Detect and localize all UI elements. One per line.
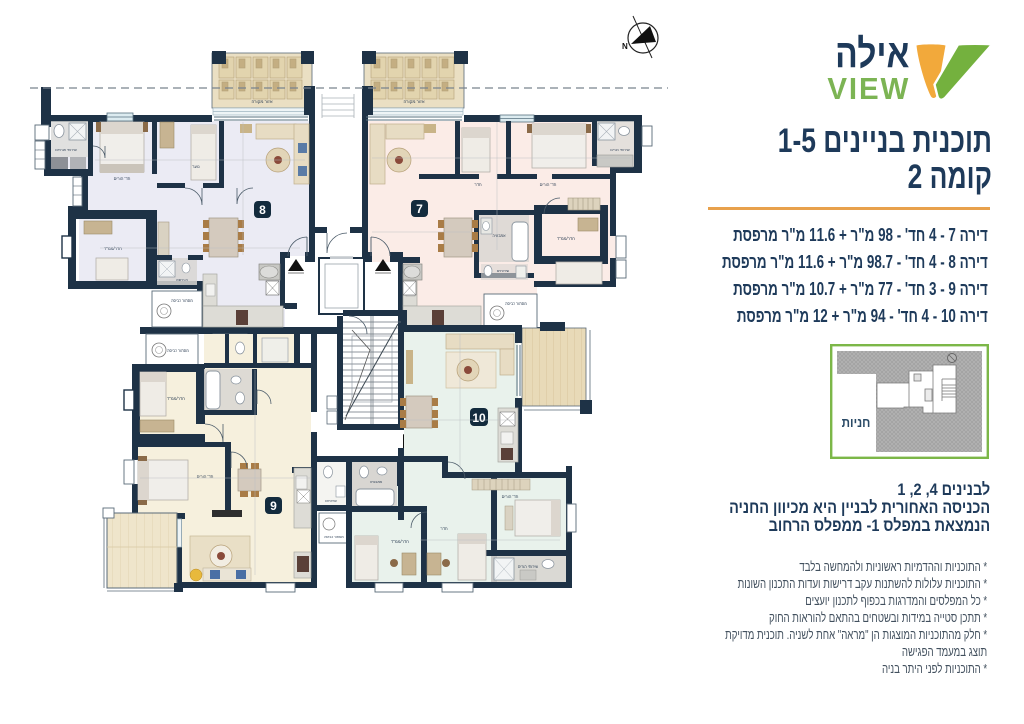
svg-text:חדר/ממ"ד: חדר/ממ"ד [167, 396, 185, 401]
svg-text:אזור מקורה: אזור מקורה [403, 99, 424, 104]
svg-text:אמבטיה: אמבטיה [370, 480, 383, 484]
svg-text:חדר: חדר [474, 182, 482, 187]
svg-text:מסתור כביסה: מסתור כביסה [505, 302, 527, 306]
svg-text:חד' הורים: חד' הורים [540, 182, 557, 187]
svg-text:חד' הורים: חד' הורים [502, 494, 519, 499]
svg-text:אזור מקורה: אזור מקורה [251, 99, 272, 104]
svg-text:9: 9 [270, 499, 277, 513]
svg-text:חדר/ממ"ד: חדר/ממ"ד [104, 246, 122, 251]
svg-text:מסתור כביסה: מסתור כביסה [171, 299, 193, 303]
svg-text:חדר/ממ"ד: חדר/ממ"ד [557, 236, 575, 241]
svg-text:שירותים: שירותים [497, 269, 510, 273]
svg-text:שירותי הורים: שירותי הורים [518, 565, 539, 569]
svg-text:מסתור כביסה: מסתור כביסה [167, 349, 189, 353]
svg-text:אמבטיה: אמבטיה [492, 234, 506, 238]
svg-text:חד' הורים: חד' הורים [114, 176, 131, 181]
svg-text:חדר: חדר [440, 526, 448, 531]
svg-text:ח.רחצה: ח.רחצה [176, 278, 188, 282]
svg-text:8: 8 [259, 203, 266, 217]
svg-text:שירותי הורים: שירותי הורים [610, 148, 630, 152]
svg-text:שירותי אורחים: שירותי אורחים [55, 148, 77, 152]
svg-text:N: N [622, 42, 628, 51]
svg-text:10: 10 [472, 411, 486, 425]
svg-text:מסתור כביסה: מסתור כביסה [324, 535, 344, 539]
svg-text:נוער: נוער [192, 164, 200, 169]
svg-text:7: 7 [416, 202, 423, 216]
svg-text:חדר/ממ"ד: חדר/ממ"ד [391, 539, 409, 544]
svg-text:שירותים: שירותים [325, 499, 337, 503]
svg-text:חניות: חניות [842, 415, 871, 430]
